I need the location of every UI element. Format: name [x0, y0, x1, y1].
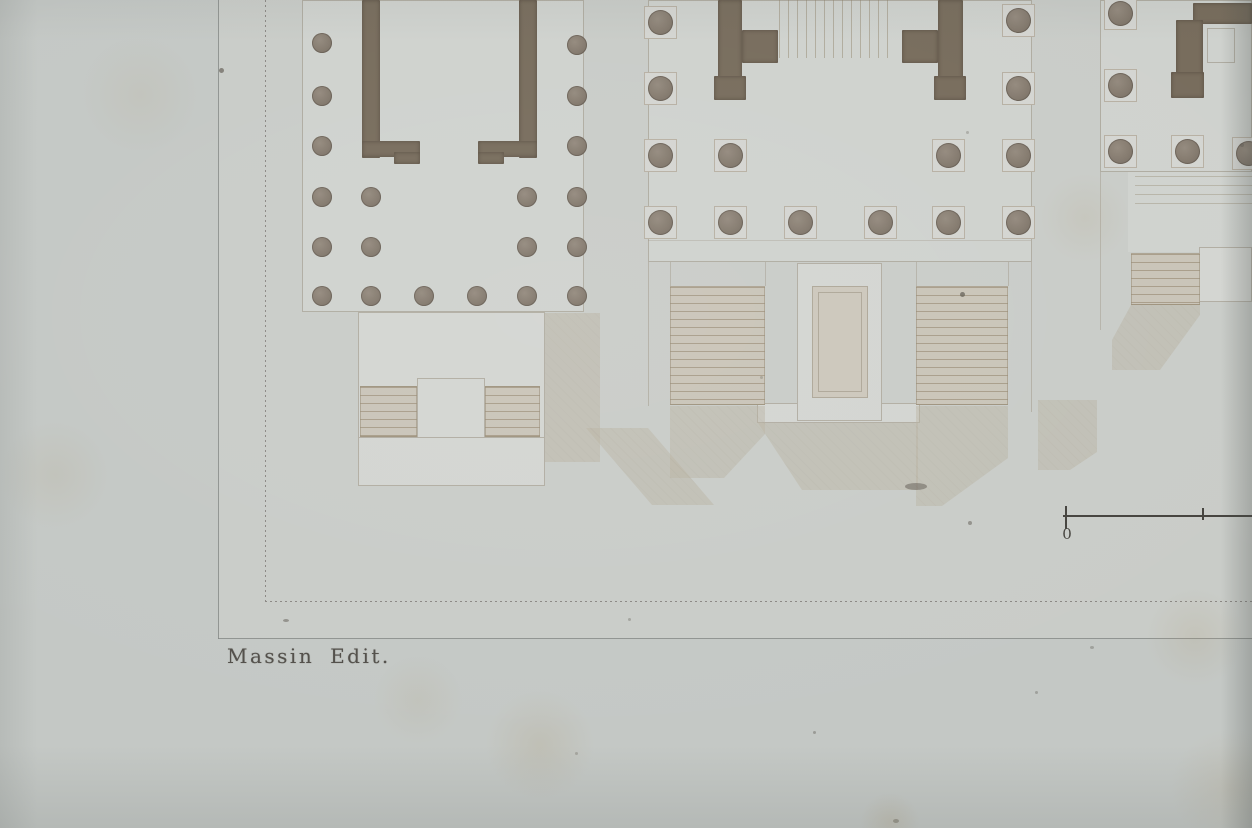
engraving-photo: 0 Massin Edit.	[0, 0, 1252, 828]
paper-speck	[905, 483, 927, 490]
paper-stain	[1040, 173, 1130, 263]
paper-speck	[760, 376, 763, 379]
paper-stain	[860, 792, 920, 828]
paper-stain	[1170, 728, 1252, 828]
paper-speck	[219, 68, 224, 73]
paper-speck	[1090, 646, 1094, 649]
paper-speck	[966, 131, 969, 134]
paper-stain	[0, 420, 110, 530]
paper-speck	[1035, 691, 1038, 694]
paper-artifacts	[0, 0, 1252, 828]
paper-stain	[1145, 587, 1245, 687]
paper-stain	[80, 35, 200, 155]
paper-stain	[485, 690, 595, 800]
paper-speck	[968, 521, 972, 525]
paper-speck	[283, 619, 289, 622]
paper-speck	[960, 292, 965, 297]
paper-stain	[373, 655, 463, 745]
paper-speck	[813, 731, 816, 734]
paper-speck	[1240, 143, 1244, 147]
paper-speck	[628, 618, 631, 621]
